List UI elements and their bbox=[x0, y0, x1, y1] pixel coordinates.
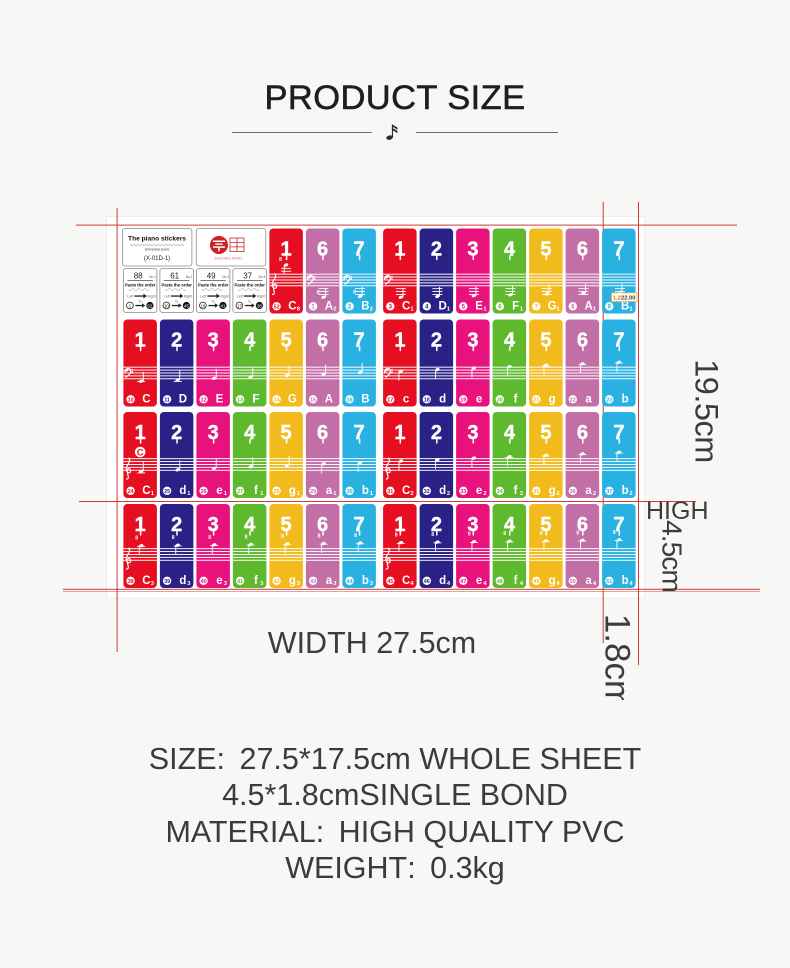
svg-text:The piano stickers: The piano stickers bbox=[128, 236, 186, 243]
svg-text:4.5cm: 4.5cm bbox=[657, 520, 689, 592]
svg-text:12: 12 bbox=[201, 397, 207, 403]
svg-text:Left: Left bbox=[164, 295, 170, 299]
svg-text:Paste the order: Paste the order bbox=[234, 283, 265, 288]
svg-text:C: C bbox=[142, 575, 150, 587]
svg-text:44: 44 bbox=[347, 579, 353, 585]
svg-text:No.2: No.2 bbox=[186, 275, 193, 279]
svg-text:47: 47 bbox=[460, 579, 466, 585]
svg-text:8: 8 bbox=[172, 535, 175, 541]
svg-text:(X-01D-1): (X-01D-1) bbox=[144, 256, 170, 262]
svg-text:11: 11 bbox=[164, 397, 170, 403]
svg-text:b: b bbox=[622, 575, 629, 587]
svg-text:No.1: No.1 bbox=[149, 275, 156, 279]
svg-text:b: b bbox=[622, 485, 629, 497]
svg-text:2: 2 bbox=[447, 491, 450, 497]
svg-text:A: A bbox=[584, 300, 592, 312]
svg-text:d: d bbox=[439, 485, 446, 497]
svg-text:D: D bbox=[179, 393, 187, 405]
svg-text:2: 2 bbox=[556, 491, 559, 497]
svg-text:G: G bbox=[548, 300, 557, 312]
svg-text:8: 8 bbox=[208, 535, 211, 541]
svg-text:ZAOCHEN MUSIC: ZAOCHEN MUSIC bbox=[214, 257, 243, 261]
svg-text:Right: Right bbox=[257, 295, 265, 299]
svg-text:52: 52 bbox=[274, 304, 280, 310]
svg-text:8: 8 bbox=[431, 532, 434, 538]
svg-text:8: 8 bbox=[318, 534, 321, 540]
svg-text:31: 31 bbox=[387, 489, 393, 495]
svg-text:36: 36 bbox=[570, 489, 576, 495]
svg-text:Left: Left bbox=[127, 295, 133, 299]
svg-text:A: A bbox=[325, 300, 333, 312]
svg-text:Right: Right bbox=[220, 295, 228, 299]
svg-text:f: f bbox=[514, 485, 518, 497]
svg-text:25: 25 bbox=[164, 489, 170, 495]
svg-text:40: 40 bbox=[201, 579, 207, 585]
svg-text:19.5cm: 19.5cm bbox=[689, 359, 725, 463]
svg-text:41: 41 bbox=[220, 303, 226, 308]
svg-text:51: 51 bbox=[606, 579, 612, 585]
svg-text:C: C bbox=[137, 448, 144, 459]
svg-text:28: 28 bbox=[274, 489, 280, 495]
svg-text:G: G bbox=[288, 393, 297, 405]
svg-text:17: 17 bbox=[387, 397, 393, 403]
svg-text:to: to bbox=[248, 300, 251, 304]
svg-text:a: a bbox=[326, 485, 333, 497]
svg-text:to: to bbox=[175, 300, 178, 304]
svg-text:17: 17 bbox=[237, 303, 243, 308]
svg-text:D: D bbox=[438, 300, 446, 312]
svg-text:a: a bbox=[585, 393, 592, 405]
svg-text:14: 14 bbox=[274, 397, 280, 403]
svg-text:2: 2 bbox=[370, 307, 373, 313]
svg-text:Left: Left bbox=[237, 295, 243, 299]
svg-text:49: 49 bbox=[207, 272, 216, 281]
svg-text:52: 52 bbox=[147, 303, 153, 308]
svg-text:10: 10 bbox=[128, 397, 134, 403]
svg-text:2: 2 bbox=[629, 491, 632, 497]
svg-text:f: f bbox=[514, 393, 518, 405]
svg-text:15: 15 bbox=[310, 397, 316, 403]
svg-text:No.4: No.4 bbox=[259, 275, 266, 279]
svg-text:No.3: No.3 bbox=[222, 275, 229, 279]
svg-text:Left: Left bbox=[200, 295, 206, 299]
svg-text:B: B bbox=[621, 300, 629, 312]
svg-text:2: 2 bbox=[410, 491, 413, 497]
svg-text:49: 49 bbox=[533, 579, 539, 585]
svg-text:8: 8 bbox=[395, 533, 398, 539]
svg-text:19: 19 bbox=[460, 397, 466, 403]
svg-text:C: C bbox=[402, 300, 410, 312]
svg-text:61: 61 bbox=[170, 272, 179, 281]
svg-text:e: e bbox=[476, 393, 482, 405]
svg-text:1.8cm: 1.8cm bbox=[598, 614, 637, 700]
svg-text:8: 8 bbox=[503, 531, 506, 537]
svg-text:13: 13 bbox=[237, 397, 243, 403]
svg-text:b: b bbox=[362, 575, 369, 587]
svg-text:34: 34 bbox=[497, 489, 503, 495]
svg-text:16: 16 bbox=[347, 397, 353, 403]
svg-text:1,222.00: 1,222.00 bbox=[613, 296, 636, 302]
svg-text:30: 30 bbox=[347, 489, 353, 495]
svg-text:F: F bbox=[252, 393, 259, 405]
svg-text:A: A bbox=[325, 393, 333, 405]
svg-text:45: 45 bbox=[184, 303, 190, 308]
svg-text:g: g bbox=[549, 393, 556, 405]
svg-text:27: 27 bbox=[237, 489, 243, 495]
svg-text:20: 20 bbox=[497, 397, 503, 403]
svg-text:E: E bbox=[216, 393, 224, 405]
svg-text:b: b bbox=[622, 393, 629, 405]
svg-text:46: 46 bbox=[424, 579, 430, 585]
svg-text:e: e bbox=[476, 485, 482, 497]
svg-text:50: 50 bbox=[570, 579, 576, 585]
svg-text:10: 10 bbox=[164, 303, 170, 308]
svg-text:8: 8 bbox=[135, 536, 138, 542]
svg-text:B: B bbox=[361, 300, 369, 312]
svg-text:Right: Right bbox=[147, 295, 155, 299]
svg-text:a: a bbox=[585, 575, 592, 587]
svg-text:g: g bbox=[289, 575, 296, 587]
svg-text:Universal score: Universal score bbox=[145, 248, 170, 252]
svg-text:B: B bbox=[361, 393, 369, 405]
svg-text:8: 8 bbox=[354, 533, 357, 539]
svg-text:16: 16 bbox=[200, 303, 206, 308]
svg-text:d: d bbox=[179, 485, 186, 497]
svg-text:F: F bbox=[512, 300, 519, 312]
svg-text:2: 2 bbox=[333, 307, 336, 313]
svg-text:8: 8 bbox=[613, 530, 616, 536]
svg-text:43: 43 bbox=[310, 579, 316, 585]
svg-text:38: 38 bbox=[257, 303, 263, 308]
svg-text:g: g bbox=[549, 575, 556, 587]
svg-text:37: 37 bbox=[606, 489, 612, 495]
svg-text:2: 2 bbox=[593, 491, 596, 497]
svg-text:8: 8 bbox=[468, 532, 471, 538]
svg-text:42: 42 bbox=[274, 579, 280, 585]
svg-text:2: 2 bbox=[483, 491, 486, 497]
svg-text:2: 2 bbox=[520, 491, 523, 497]
svg-text:29: 29 bbox=[310, 489, 316, 495]
svg-text:22: 22 bbox=[570, 397, 576, 403]
svg-text:g: g bbox=[289, 485, 296, 497]
svg-text:e: e bbox=[216, 575, 222, 587]
svg-text:e: e bbox=[216, 485, 222, 497]
svg-text:a: a bbox=[585, 485, 592, 497]
svg-text:88: 88 bbox=[134, 272, 143, 281]
svg-text:a: a bbox=[326, 575, 333, 587]
svg-text:18: 18 bbox=[424, 397, 430, 403]
svg-text:Right: Right bbox=[184, 295, 192, 299]
svg-text:23: 23 bbox=[606, 397, 612, 403]
svg-text:c: c bbox=[403, 393, 410, 405]
svg-text:d: d bbox=[439, 575, 446, 587]
svg-text:E: E bbox=[475, 300, 483, 312]
svg-text:8: 8 bbox=[540, 531, 543, 537]
svg-text:to: to bbox=[212, 300, 215, 304]
svg-text:to: to bbox=[139, 300, 142, 304]
svg-text:f: f bbox=[254, 575, 258, 587]
svg-text:33: 33 bbox=[460, 489, 466, 495]
svg-text:39: 39 bbox=[164, 579, 170, 585]
svg-text:C: C bbox=[142, 485, 150, 497]
svg-text:8: 8 bbox=[245, 534, 248, 540]
svg-text:8: 8 bbox=[281, 534, 284, 540]
svg-text:35: 35 bbox=[533, 489, 539, 495]
svg-text:24: 24 bbox=[128, 489, 134, 495]
svg-text:Paste the order: Paste the order bbox=[198, 283, 229, 288]
svg-text:g: g bbox=[549, 485, 556, 497]
svg-text:26: 26 bbox=[201, 489, 207, 495]
svg-text:41: 41 bbox=[237, 579, 243, 585]
svg-text:Paste the order: Paste the order bbox=[125, 283, 156, 288]
svg-text:8: 8 bbox=[317, 290, 320, 296]
svg-text:C: C bbox=[288, 300, 296, 312]
svg-text:d: d bbox=[439, 393, 446, 405]
svg-text:48: 48 bbox=[497, 579, 503, 585]
svg-text:C: C bbox=[142, 393, 150, 405]
svg-text:f: f bbox=[254, 485, 258, 497]
svg-text:e: e bbox=[476, 575, 482, 587]
svg-text:Paste the order: Paste the order bbox=[161, 283, 192, 288]
svg-text:32: 32 bbox=[424, 489, 430, 495]
svg-text:8: 8 bbox=[576, 530, 579, 536]
svg-text:8: 8 bbox=[353, 289, 356, 295]
svg-text:45: 45 bbox=[387, 579, 393, 585]
svg-text:37: 37 bbox=[243, 272, 252, 281]
svg-text:d: d bbox=[179, 575, 186, 587]
svg-text:21: 21 bbox=[533, 397, 539, 403]
svg-text:b: b bbox=[362, 485, 369, 497]
svg-text:1: 1 bbox=[129, 303, 132, 308]
svg-text:C: C bbox=[402, 575, 410, 587]
svg-text:38: 38 bbox=[128, 579, 134, 585]
svg-text:C: C bbox=[402, 485, 410, 497]
svg-text:8: 8 bbox=[279, 257, 282, 263]
svg-text:f: f bbox=[514, 575, 518, 587]
